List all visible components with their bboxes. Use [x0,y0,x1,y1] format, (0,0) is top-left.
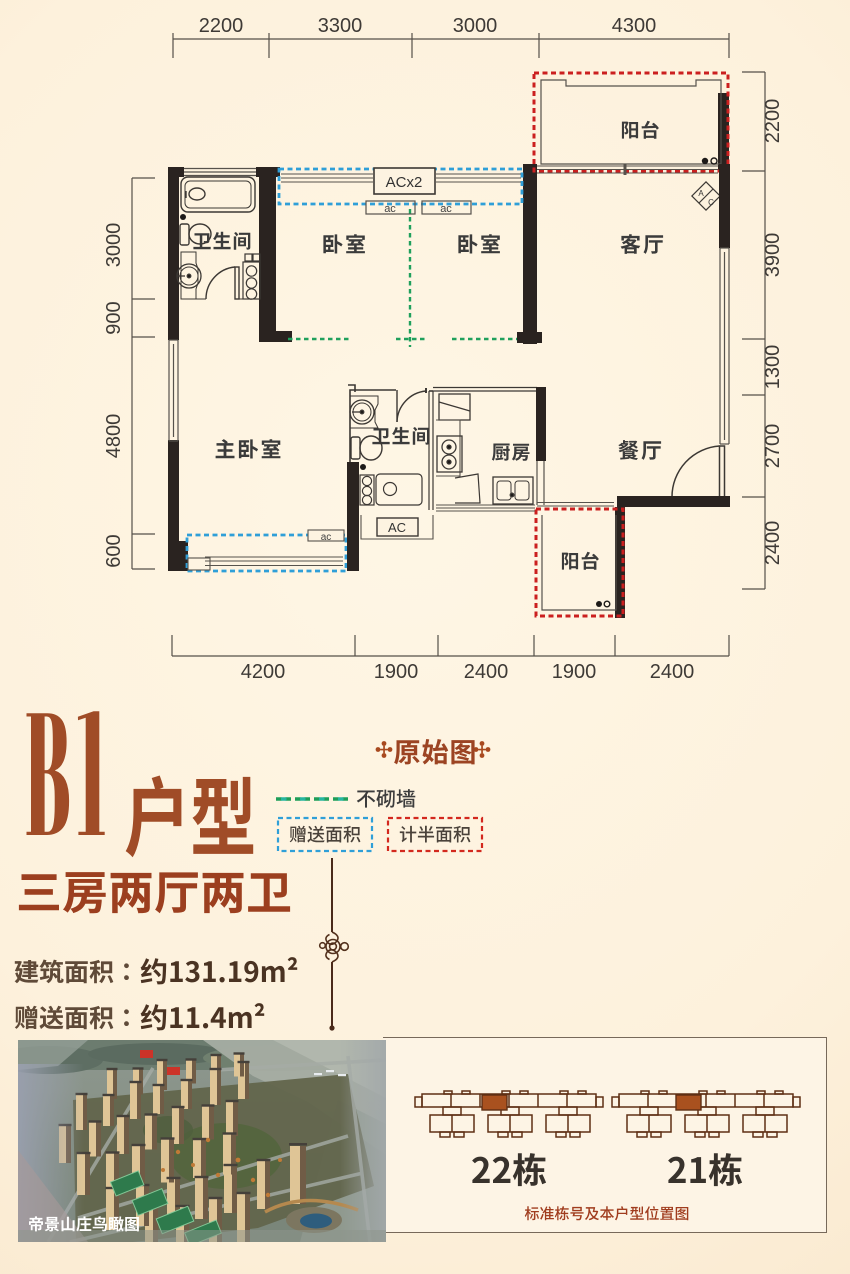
svg-text:2200: 2200 [199,15,244,37]
svg-text:AC: AC [388,520,406,535]
svg-text:A: A [698,189,704,198]
svg-text:2400: 2400 [464,661,509,683]
svg-text:C: C [708,198,714,207]
svg-text:3000: 3000 [453,15,498,37]
svg-text:2200: 2200 [762,99,784,144]
svg-text:3900: 3900 [762,233,784,278]
svg-text:900: 900 [103,301,125,334]
svg-text:ac: ac [321,532,332,543]
svg-text:ac: ac [384,203,396,215]
svg-text:1900: 1900 [374,661,419,683]
svg-text:4200: 4200 [241,661,286,683]
svg-text:4800: 4800 [103,414,125,459]
svg-text:600: 600 [103,534,125,567]
svg-text:4300: 4300 [612,15,657,37]
svg-text:3300: 3300 [318,15,363,37]
svg-text:2400: 2400 [762,521,784,566]
svg-text:2700: 2700 [762,424,784,469]
svg-text:1900: 1900 [552,661,597,683]
svg-text:3000: 3000 [103,223,125,268]
svg-text:1300: 1300 [762,345,784,390]
svg-text:ac: ac [440,203,452,215]
svg-text:2400: 2400 [650,661,695,683]
svg-text:ACx2: ACx2 [386,174,423,191]
